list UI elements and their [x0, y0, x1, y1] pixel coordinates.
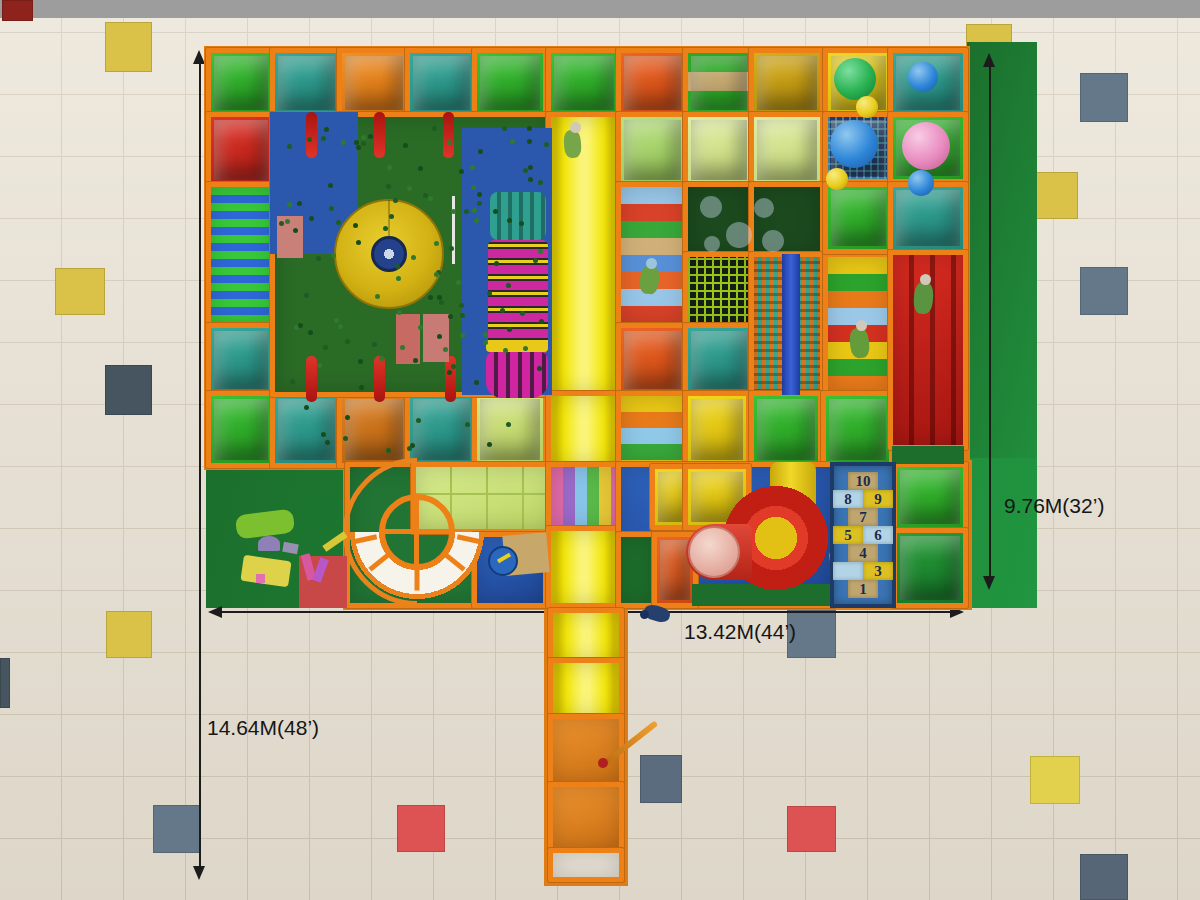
pit-balls	[423, 193, 428, 198]
child-head	[570, 122, 581, 133]
floor-tile	[105, 22, 152, 72]
clear-ball	[704, 236, 720, 252]
cell-gold	[749, 48, 825, 118]
pit-balls	[471, 185, 476, 190]
corridor-slide	[548, 658, 624, 720]
soft-mat	[423, 314, 449, 362]
tower-ring	[486, 340, 548, 352]
mat-cell	[616, 532, 656, 608]
pit-balls	[449, 246, 454, 251]
palm-post	[306, 112, 317, 158]
hopscotch-square: 5	[833, 526, 863, 544]
hopscotch-number: 8	[844, 491, 852, 507]
pit-balls	[334, 318, 339, 323]
straight-slide	[546, 112, 622, 397]
cell-teal	[270, 391, 343, 468]
clear-ball-cell	[749, 182, 825, 258]
roller-steps	[616, 391, 689, 468]
barrel-roller	[206, 182, 276, 329]
pit-balls	[523, 346, 528, 351]
child-head	[646, 258, 657, 269]
pit-balls	[387, 165, 392, 170]
pit-balls	[439, 300, 444, 305]
carousel-hub	[371, 236, 407, 272]
soft-mat	[396, 314, 420, 364]
dim-line-right	[989, 66, 991, 577]
pit-balls	[477, 201, 482, 206]
cell-green	[472, 48, 548, 118]
hopscotch-number: 10	[856, 473, 871, 489]
floor-tile	[153, 805, 200, 853]
floor-tile	[0, 658, 10, 708]
floor-tile	[55, 268, 105, 315]
floor-tile	[2, 0, 33, 21]
palm-post	[445, 356, 456, 402]
pit-balls	[359, 385, 364, 390]
pit-balls	[470, 165, 475, 170]
pit-balls	[298, 323, 303, 328]
hopscotch-square	[833, 562, 863, 580]
hopscotch-square: 4	[848, 544, 878, 562]
pit-balls	[407, 446, 412, 451]
cell-green	[749, 391, 823, 468]
cell-green	[206, 391, 276, 468]
play-ball-yellow	[856, 96, 878, 118]
cell-pale-green	[683, 112, 755, 188]
cell-green	[546, 48, 622, 118]
dim-arrow-down	[983, 576, 995, 590]
hopscotch-number: 3	[874, 563, 882, 579]
floor-tile	[1080, 73, 1128, 122]
pit-balls	[544, 142, 549, 147]
cell-green	[206, 48, 276, 118]
floor-tile	[1080, 854, 1128, 900]
pit-balls	[304, 293, 309, 298]
palm-post	[374, 356, 385, 402]
slide-landing	[892, 446, 964, 464]
dim-arrow-left	[208, 606, 222, 618]
dim-line-left	[199, 63, 201, 867]
floor-tile	[1080, 267, 1128, 315]
pit-balls	[483, 332, 488, 337]
straight-slide	[546, 526, 622, 608]
pit-balls	[345, 415, 350, 420]
playground-floorplan-scene: 14.64M(48’) 9.76M(32’) 13.42M(44’) 10897…	[0, 0, 1200, 900]
child-head	[920, 274, 931, 285]
cell-pale-green	[749, 112, 825, 188]
pit-balls	[308, 330, 313, 335]
cell-orange-brown	[337, 391, 411, 468]
pit-balls	[379, 356, 384, 361]
pit-balls	[338, 324, 343, 329]
pit-balls	[386, 448, 391, 453]
roller-gate	[546, 462, 622, 532]
pit-balls	[316, 256, 321, 261]
child-head	[856, 320, 867, 331]
floor-tile	[397, 805, 445, 852]
play-ball-green	[834, 58, 876, 100]
net-stripe	[782, 254, 800, 395]
cell-orange-red	[616, 323, 689, 397]
play-ball-blue	[908, 170, 934, 196]
foam-bit	[256, 574, 265, 583]
cell-teal	[683, 323, 755, 397]
hopscotch-number: 6	[874, 527, 882, 543]
child-figure	[563, 129, 582, 158]
pit-balls	[507, 327, 512, 332]
pit-balls	[519, 221, 524, 226]
pit-balls	[323, 345, 328, 350]
clear-ball	[754, 198, 774, 218]
mesh-tube	[490, 192, 546, 240]
corridor-exit-mat	[548, 848, 624, 882]
pit-balls	[418, 166, 423, 171]
hopscotch-square: 7	[848, 508, 878, 526]
pit-balls	[321, 136, 326, 141]
pit-balls	[487, 442, 492, 447]
dim-label-left: 14.64M(48’)	[207, 716, 319, 740]
pit-balls	[416, 418, 421, 423]
pit-balls	[487, 291, 492, 296]
floor-tile	[105, 365, 152, 415]
pit-balls	[434, 241, 439, 246]
ball-cell-green	[823, 182, 894, 254]
pit-balls	[432, 126, 437, 131]
corridor-slide	[548, 608, 624, 664]
corridor-tunnel	[548, 782, 624, 854]
trampoline	[683, 252, 755, 329]
cell-red	[206, 112, 276, 188]
stick-bead	[598, 758, 608, 768]
pit-balls	[356, 145, 361, 150]
clear-ball	[762, 230, 784, 252]
hopscotch-square: 10	[848, 472, 878, 490]
cell-teal	[270, 48, 343, 118]
hopscotch-number: 4	[859, 545, 867, 561]
divider	[452, 196, 455, 264]
palm-post	[306, 356, 317, 402]
hopscotch-square: 6	[863, 526, 893, 544]
play-ball-blue	[908, 62, 938, 92]
pit-balls	[307, 137, 312, 142]
mesh-tower	[488, 240, 548, 354]
hopscotch-square: 9	[863, 490, 893, 508]
pit-balls	[493, 209, 498, 214]
wall-band	[0, 0, 1200, 18]
pit-balls	[459, 169, 464, 174]
floor-tile	[1032, 172, 1078, 219]
cell-light-green	[472, 391, 548, 468]
hopscotch-square: 8	[833, 490, 863, 508]
pit-balls	[396, 276, 401, 281]
spiral-bubble	[688, 526, 740, 578]
hopscotch-square: 3	[863, 562, 893, 580]
pit-balls	[465, 422, 470, 427]
cell-teal	[206, 323, 276, 397]
play-ball-yellow	[826, 168, 848, 190]
cell-teal	[405, 48, 478, 118]
hopscotch-number: 7	[859, 509, 867, 525]
child-head	[640, 610, 649, 619]
cell-green-tan-stripe	[683, 48, 755, 118]
pit-balls	[290, 379, 295, 384]
cell-green	[821, 391, 894, 468]
pit-balls	[447, 140, 452, 145]
straight-slide	[546, 391, 622, 468]
pit-balls	[358, 359, 363, 364]
pit-balls	[456, 280, 461, 285]
play-ball-blue	[830, 120, 878, 168]
floor-tile	[640, 755, 682, 803]
clear-ball	[726, 222, 752, 248]
pit-balls	[528, 165, 533, 170]
dim-label-bottom: 13.42M(44’)	[684, 620, 796, 644]
dim-label-right: 9.76M(32’)	[1004, 494, 1104, 518]
wheel-cross-bar	[414, 494, 419, 570]
mesh-tower-base	[486, 352, 548, 398]
pit-balls	[397, 310, 402, 315]
clear-ball	[700, 196, 722, 218]
hopscotch-number: 5	[844, 527, 852, 543]
cell-dark-green	[892, 528, 968, 608]
dim-arrow-down	[193, 866, 205, 880]
pit-balls	[336, 220, 341, 225]
corridor-tunnel	[548, 714, 624, 788]
cell-green	[892, 462, 968, 532]
pit-balls	[285, 219, 290, 224]
roller-steps	[616, 182, 689, 329]
pit-balls	[293, 228, 298, 233]
cell-yellow	[683, 391, 751, 468]
cell-orange	[337, 48, 411, 118]
hopscotch-square: 1	[848, 580, 878, 598]
pit-balls	[345, 339, 350, 344]
floor-tile	[1030, 756, 1080, 804]
floor-tile	[787, 806, 836, 852]
pit-balls	[527, 139, 532, 144]
play-ball-pink	[902, 122, 950, 170]
pit-balls	[478, 149, 483, 154]
palm-post	[374, 112, 385, 158]
cell-light-green	[616, 112, 689, 188]
dim-arrow-up	[983, 53, 995, 67]
pit-balls	[297, 201, 302, 206]
pit-balls	[538, 180, 543, 185]
palm-post	[443, 112, 454, 158]
pit-balls	[325, 440, 330, 445]
pit-balls	[494, 261, 499, 266]
pit-balls	[448, 314, 453, 319]
pit-balls	[459, 303, 464, 308]
floor-tile	[106, 611, 152, 658]
hopscotch-number: 1	[859, 581, 867, 597]
cell-teal	[405, 391, 478, 468]
foam-halfmoon	[258, 536, 280, 551]
hopscotch-number: 9	[874, 491, 882, 507]
pit-balls	[538, 249, 543, 254]
pit-balls	[527, 126, 532, 131]
pit-balls	[329, 206, 334, 211]
pit-balls	[451, 209, 456, 214]
cell-orange-red	[616, 48, 689, 118]
pit-balls	[474, 380, 479, 385]
play-disc	[488, 546, 518, 576]
pit-balls	[343, 436, 348, 441]
